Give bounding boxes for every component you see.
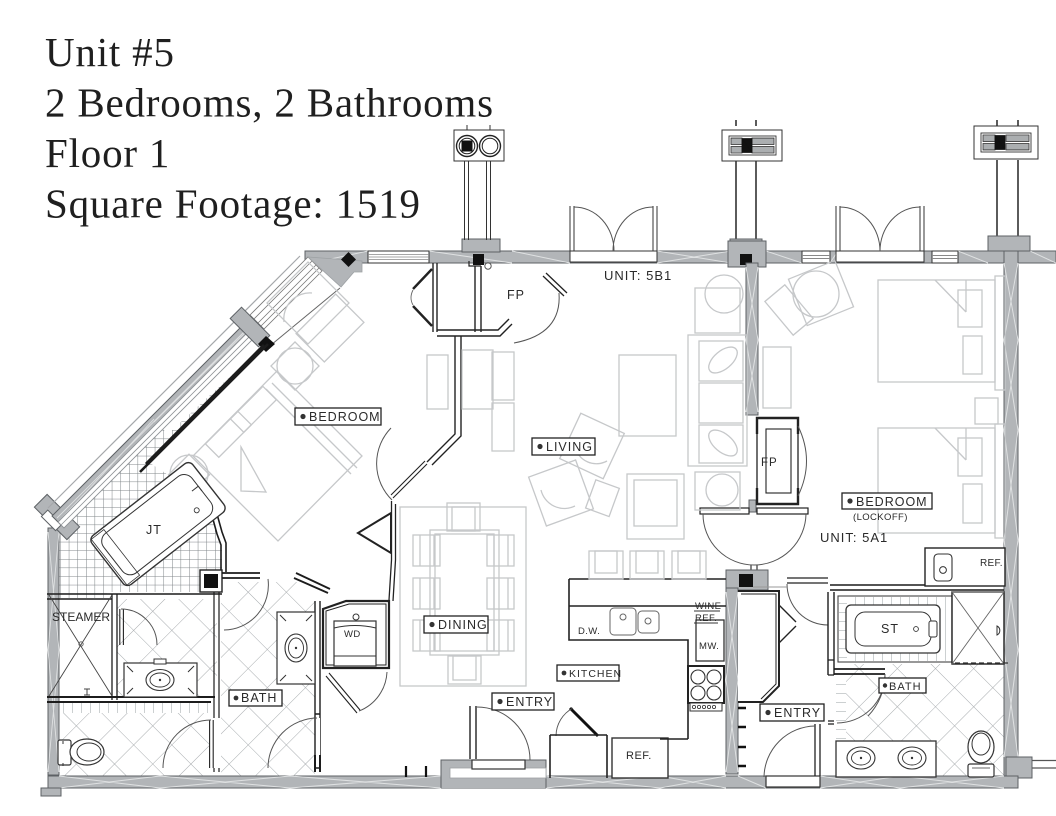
- svg-text:BATH: BATH: [889, 681, 922, 693]
- svg-text:MW.: MW.: [699, 641, 719, 652]
- svg-text:Square Footage: 1519: Square Footage: 1519: [45, 181, 421, 227]
- svg-text:BEDROOM: BEDROOM: [856, 495, 928, 509]
- svg-text:REF.: REF.: [626, 750, 652, 762]
- svg-text:FP: FP: [761, 457, 778, 469]
- svg-text:Unit #5: Unit #5: [45, 29, 175, 75]
- svg-text:REF.: REF.: [980, 558, 1003, 569]
- svg-text:(LOCKOFF): (LOCKOFF): [853, 512, 908, 523]
- svg-text:LIVING: LIVING: [546, 440, 593, 454]
- svg-text:ST: ST: [881, 622, 899, 636]
- svg-text:Floor 1: Floor 1: [45, 130, 170, 176]
- svg-text:DINING: DINING: [438, 618, 488, 632]
- svg-text:ENTRY: ENTRY: [774, 706, 821, 720]
- svg-text:KITCHEN: KITCHEN: [569, 668, 622, 680]
- svg-text:UNIT: 5B1: UNIT: 5B1: [604, 268, 672, 283]
- svg-text:JT: JT: [146, 523, 162, 537]
- svg-text:D.W.: D.W.: [578, 626, 600, 637]
- svg-text:BATH: BATH: [241, 691, 277, 705]
- svg-text:BEDROOM: BEDROOM: [309, 410, 381, 424]
- svg-text:ENTRY: ENTRY: [506, 695, 553, 709]
- svg-text:WINE: WINE: [695, 601, 721, 612]
- svg-text:UNIT: 5A1: UNIT: 5A1: [820, 530, 888, 545]
- svg-text:WD: WD: [344, 629, 361, 640]
- svg-text:2 Bedrooms, 2 Bathrooms: 2 Bedrooms, 2 Bathrooms: [45, 80, 494, 126]
- svg-text:REF.: REF.: [695, 613, 717, 624]
- svg-text:FP: FP: [507, 288, 525, 302]
- svg-text:STEAMER: STEAMER: [52, 610, 110, 624]
